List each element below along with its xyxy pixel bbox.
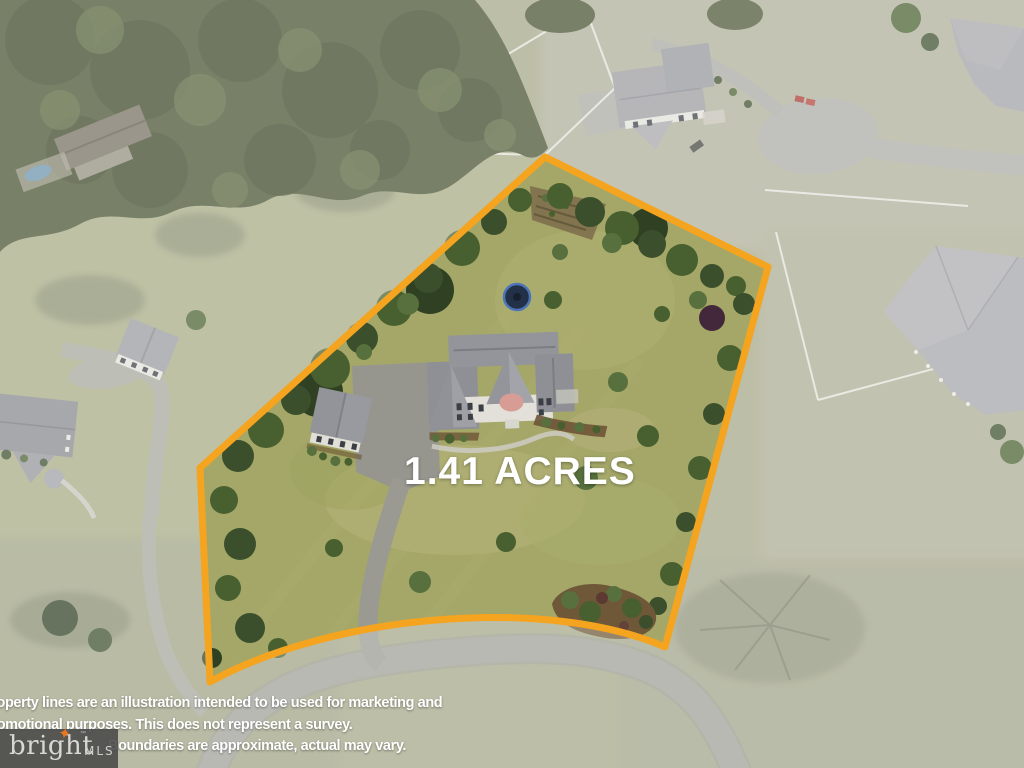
brightmls-logo: bright ✦ ™ MLS xyxy=(0,729,118,768)
trademark-symbol: ™ xyxy=(80,731,86,737)
purple-leaf-tree xyxy=(699,305,725,331)
aerial-scene xyxy=(0,0,1024,768)
trampoline xyxy=(504,284,530,310)
disclaimer-line-1: Property lines are an illustration inten… xyxy=(0,693,442,715)
aerial-photo: 1.41 ACRES Property lines are an illustr… xyxy=(0,0,1024,768)
disclaimer-line-3: Boundaries are approximate, actual may v… xyxy=(108,736,442,758)
acreage-label: 1.41 ACRES xyxy=(404,450,636,494)
brightmls-mls-label: MLS xyxy=(84,744,115,758)
